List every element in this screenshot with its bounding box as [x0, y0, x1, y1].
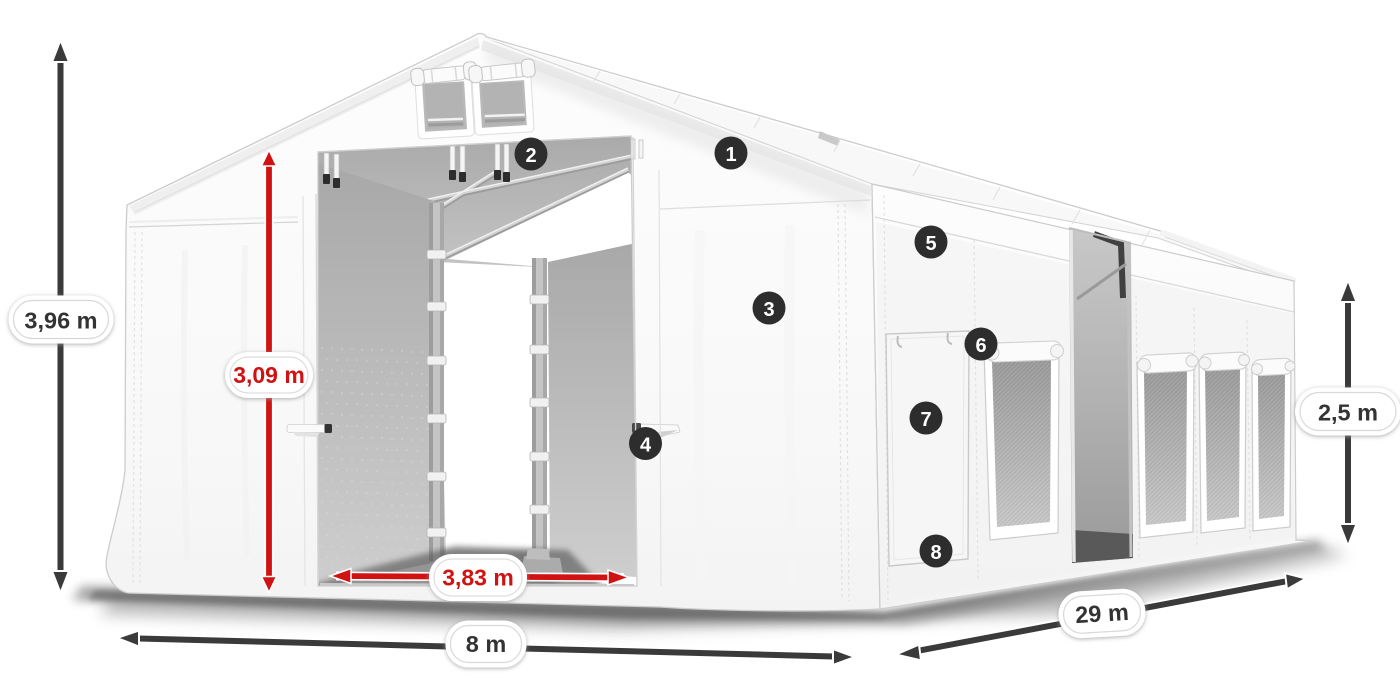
svg-text:7: 7: [920, 409, 931, 431]
svg-text:3: 3: [763, 299, 774, 321]
svg-text:3,09 m: 3,09 m: [233, 362, 305, 388]
svg-text:2,5 m: 2,5 m: [1318, 400, 1378, 426]
svg-text:5: 5: [925, 233, 936, 255]
svg-text:3,96 m: 3,96 m: [24, 308, 97, 334]
svg-text:6: 6: [975, 335, 986, 357]
svg-text:2: 2: [525, 145, 536, 167]
svg-text:8: 8: [930, 542, 941, 564]
svg-text:3,83 m: 3,83 m: [442, 565, 514, 591]
svg-text:4: 4: [640, 435, 652, 457]
svg-text:8 m: 8 m: [466, 631, 507, 657]
svg-text:1: 1: [725, 144, 736, 166]
svg-text:29 m: 29 m: [1074, 599, 1129, 628]
